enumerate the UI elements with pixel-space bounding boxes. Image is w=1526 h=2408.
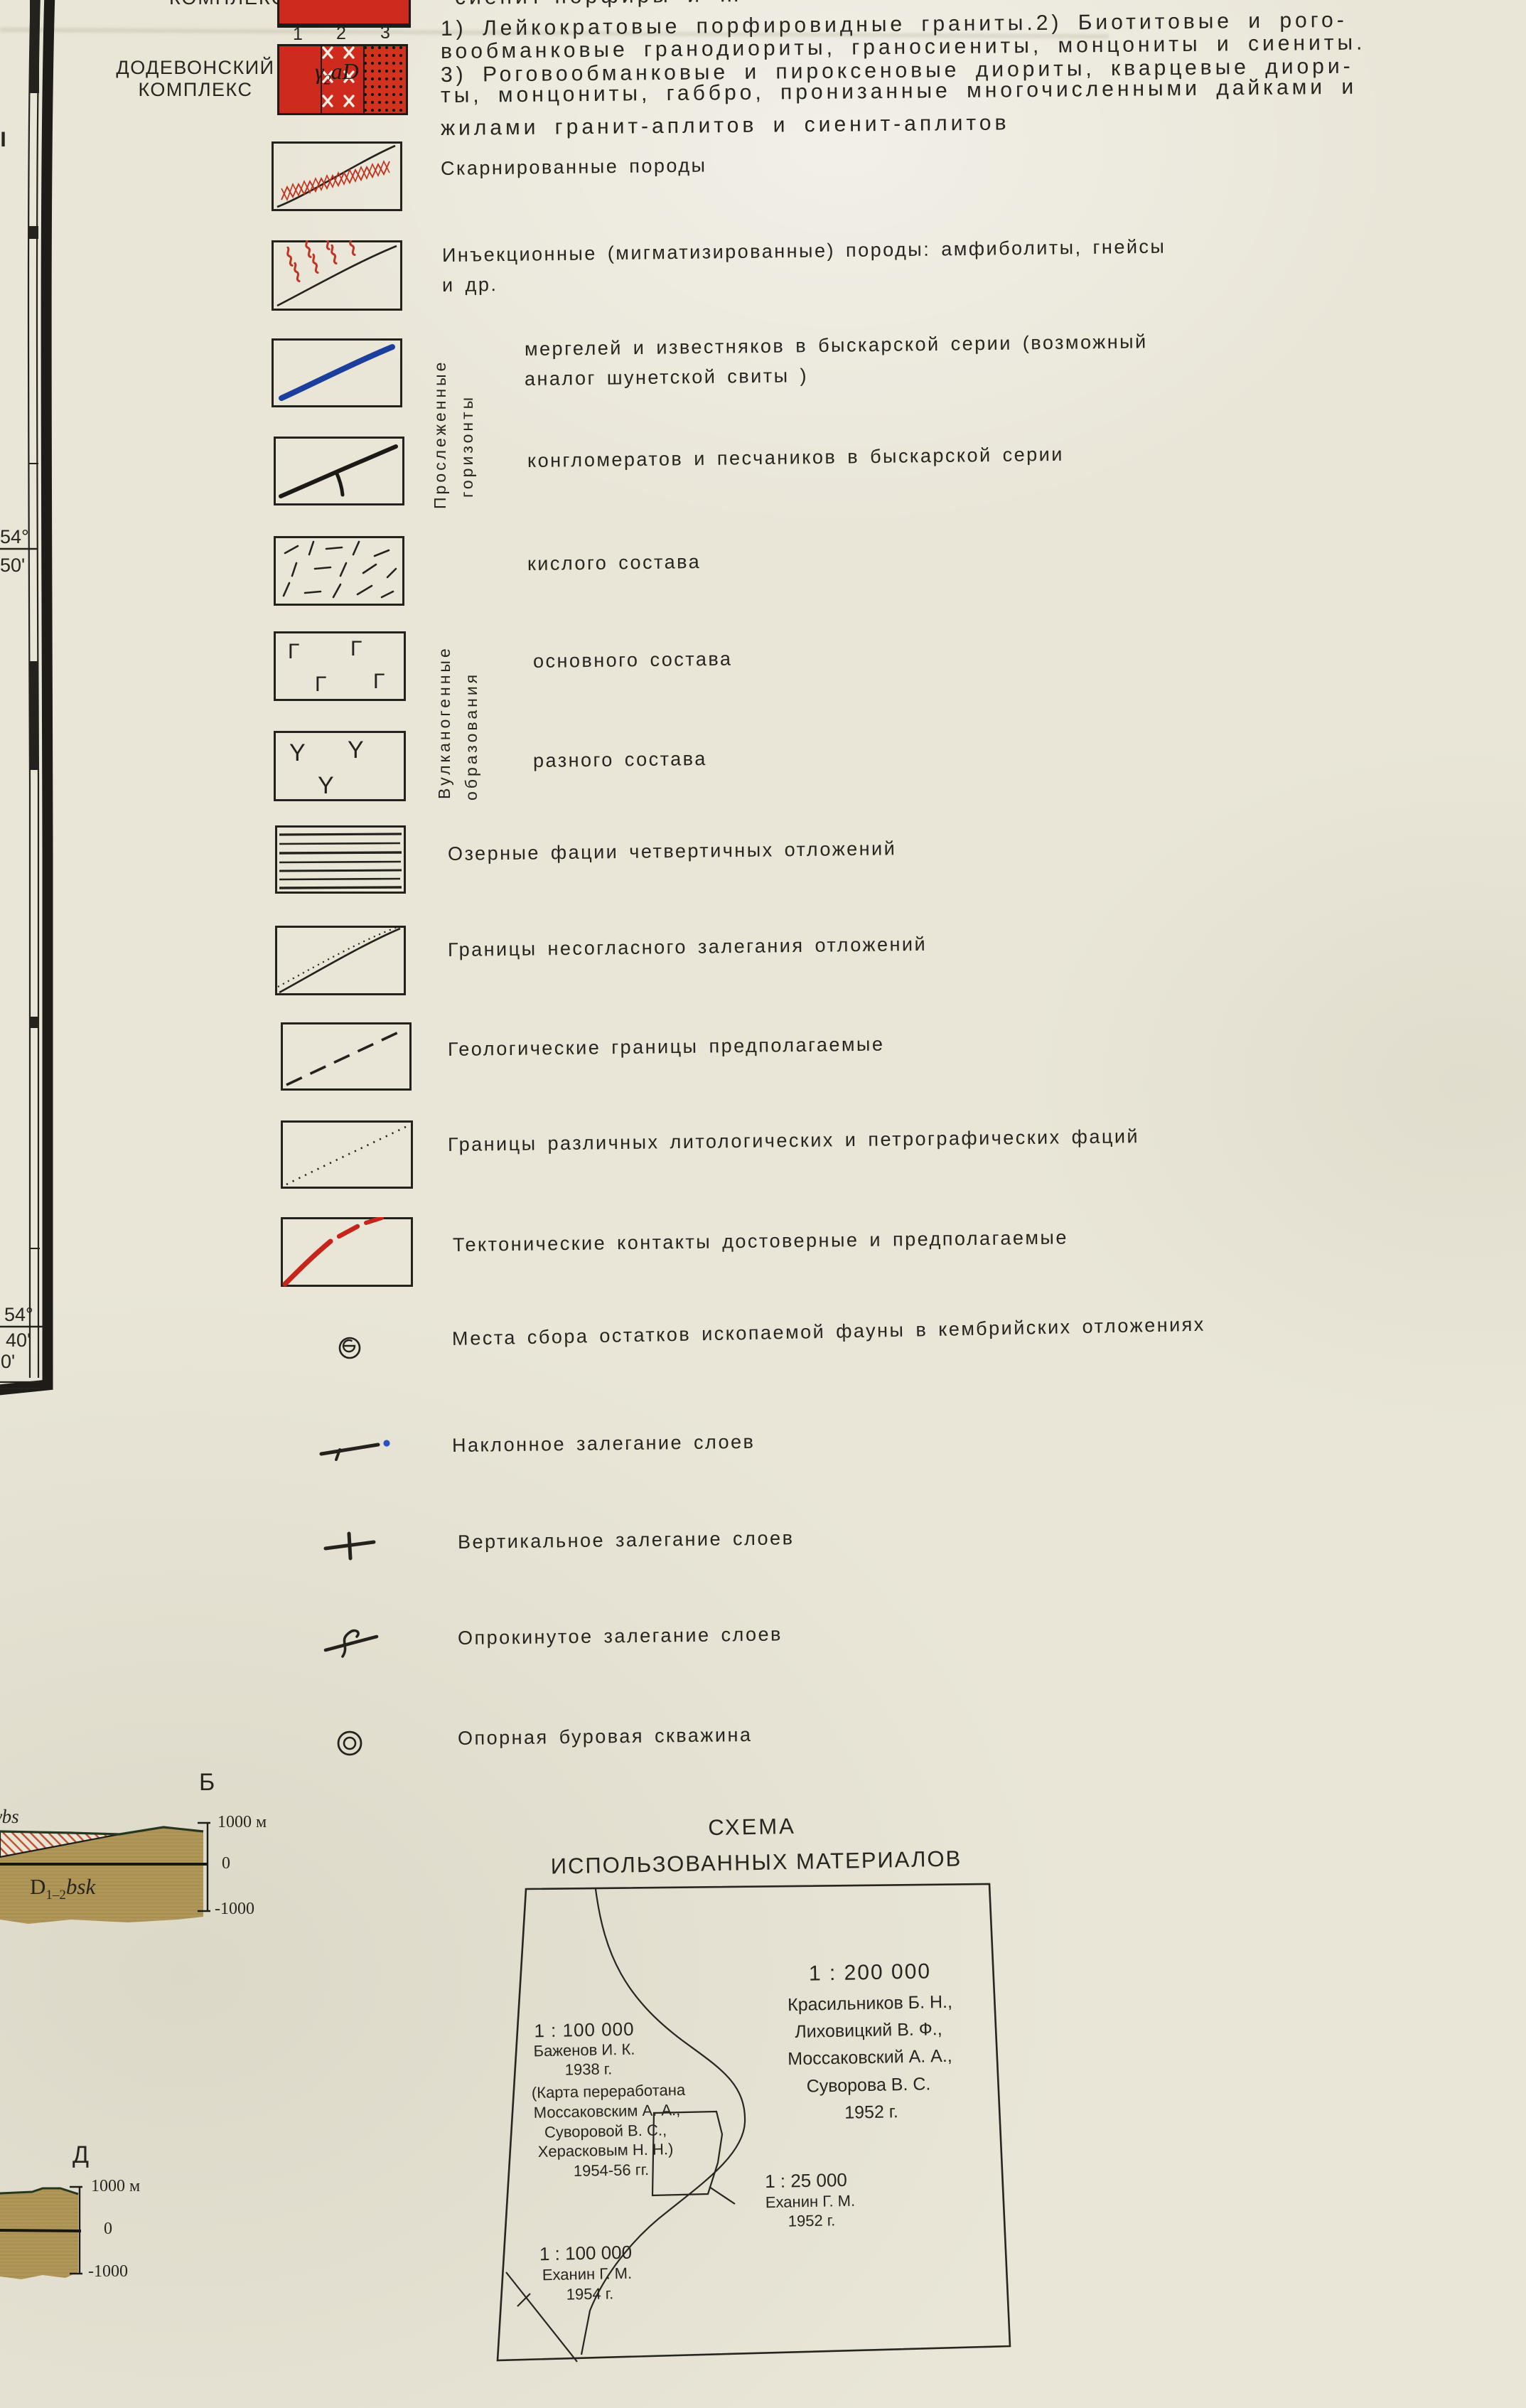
lake-horizontal-lines: [279, 834, 402, 888]
legend-label-injection-1: Инъекционные (мигматизированные) породы:…: [442, 236, 1166, 267]
tectonic-solid-segment: [285, 1241, 331, 1284]
swatch-col-number-1: 1: [293, 24, 303, 45]
schema-ekh100-line2: 1954 г.: [566, 2284, 613, 2303]
conglomerate-horizon-spur: [336, 472, 343, 495]
fossil-site-icon: [333, 1331, 367, 1365]
complex-name: ДОДЕВОНСКИЙ КОМПЛЕКС: [114, 57, 277, 101]
section-d-scale-0: 0: [104, 2220, 112, 2239]
legend-label-overturned: Опрокинутое залегание слоев: [458, 1623, 783, 1649]
symbol-unconformity-boundary: [275, 926, 406, 995]
symbol-conglomerate-horizon: [274, 437, 404, 505]
unit-d-sub: 1–2: [45, 1888, 66, 1903]
section-d-scale-1000: 1000 м: [91, 2177, 140, 2196]
schema-ekh25-scale: 1 : 25 000: [765, 2169, 847, 2193]
inclined-bedding-icon: [316, 1433, 398, 1466]
complex-desc-line5: жилами гранит-аплитов и сиенит-аплитов: [441, 111, 1010, 141]
section-b-scale-0: 0: [222, 1854, 230, 1873]
group-label-volcanic-1: Вулканогенные: [435, 613, 454, 799]
legend-label-marl-2: аналог шунетской свиты ): [525, 365, 808, 390]
complex-desc-cut: сиенит-порфиры и …: [455, 0, 744, 10]
group-label-traced-horizons-2: горизонты: [458, 351, 477, 498]
corner-lat-54: 54°: [4, 1304, 33, 1326]
unit-d-rest: bsk: [66, 1874, 95, 1899]
schema-bazh-line7: 1954-56 гг.: [574, 2161, 650, 2180]
symbol-skarn-rocks: [272, 141, 402, 211]
unit-code-gamma2ad: γ2aD: [315, 58, 359, 88]
svg-text:Г: Г: [288, 640, 299, 663]
injection-contact-line: [277, 246, 397, 306]
legend-label-injection-2: и др.: [442, 274, 498, 296]
legend-label-skarn: Скарнированные породы: [441, 154, 707, 180]
complex-name-line1: ДОДЕВОНСКИЙ: [114, 57, 277, 79]
schema-ekh25-line2: 1952 г.: [788, 2211, 835, 2230]
tectonic-dash-1: [339, 1226, 358, 1236]
injection-squiggles: [285, 240, 356, 282]
schema-bazh-line5: Суворовой В. С.,: [544, 2121, 667, 2141]
legend-label-borehole: Опорная буровая скважина: [458, 1724, 753, 1750]
swatch-col-number-3: 3: [380, 23, 390, 43]
swatch-col-number-2: 2: [336, 23, 346, 44]
symbol-mixed-volcanics: YY Y: [274, 731, 406, 801]
symbol-injection-rocks: [272, 240, 402, 311]
unit-code-rest: aD: [331, 58, 359, 84]
symbol-facies-boundary: [281, 1120, 413, 1189]
schema-title-line1: СХЕМА: [708, 1814, 796, 1841]
legend-label-conglomerate: конгломератов и песчаников в быскарской …: [527, 444, 1064, 472]
unconformity-dotted-line: [278, 927, 397, 987]
complex-header-fragment: КОМПЛЕКС: [169, 0, 286, 9]
svg-text:Г: Г: [350, 637, 362, 660]
corner-lat-40min: 40': [6, 1329, 31, 1352]
schema-bazh-line3: (Карта переработана: [532, 2081, 686, 2102]
legend-label-vertical: Вертикальное залегание слоев: [458, 1527, 795, 1553]
basic-gamma-glyphs: ГГ ГГ: [288, 637, 385, 696]
section-d-zero-line: [0, 2230, 81, 2231]
schema-index-map: [398, 1848, 1052, 2389]
legend-label-facies: Границы различных литологических и петро…: [448, 1125, 1139, 1156]
section-d-scale-minus1000: -1000: [88, 2262, 128, 2281]
mixed-y-glyphs: YY Y: [289, 737, 364, 799]
symbol-basic-volcanics: ГГ ГГ: [274, 631, 406, 701]
map-frame-border: [0, 0, 92, 1422]
sheet-index-roman: II: [0, 128, 8, 152]
schema-b200-line4: Суворова В. С.: [806, 2074, 930, 2097]
legend-label-acid: кислого состава: [527, 551, 702, 575]
legend-label-basic: основного состава: [533, 648, 733, 673]
geological-map-legend-sheet: II 54° 50' 54° 40' 00' КОМПЛЕКС 1 2 3 γ2…: [0, 0, 1526, 2408]
section-b-profile: [0, 1763, 242, 1941]
skarn-zigzag-2: [281, 161, 389, 200]
marl-horizon-line: [281, 347, 392, 398]
legend-label-inclined: Наклонное залегание слоев: [452, 1431, 756, 1457]
symbol-marl-horizon: [272, 338, 402, 407]
symbol-acid-volcanics: [274, 536, 404, 606]
complex-name-line2: КОМПЛЕКС: [114, 79, 277, 101]
legend-label-marl-1: мергелей и известняков в быскарской сери…: [525, 331, 1148, 360]
legend-label-tectonic: Тектонические контакты достоверные и пре…: [453, 1226, 1068, 1256]
group-label-traced-horizons-1: Прослеженные: [431, 328, 450, 509]
legend-label-fossil: Места сбора остатков ископаемой фауны в …: [452, 1314, 1205, 1350]
schema-bazh-line4: Моссаковским А. А.,: [533, 2101, 680, 2122]
section-b-scale-1000: 1000 м: [217, 1813, 267, 1832]
unit-code-gamma: γ: [315, 58, 324, 84]
facies-dotted-line: [286, 1126, 407, 1184]
conglomerate-horizon-line: [281, 446, 396, 496]
skarn-contact-line: [277, 146, 395, 207]
inferred-dashed-line: [286, 1029, 404, 1085]
schema-bazh-line2: 1938 г.: [564, 2060, 612, 2079]
schema-bazh-line1: Баженов И. К.: [533, 2040, 635, 2061]
svg-text:Y: Y: [348, 737, 364, 764]
symbol-lake-facies: [275, 825, 406, 894]
borehole-icon: [330, 1723, 370, 1763]
unit-d: D: [30, 1874, 45, 1899]
legend-label-inferred: Геологические границы предполагаемые: [448, 1033, 885, 1061]
overturned-bedding-icon: [320, 1624, 387, 1664]
svg-text:Г: Г: [373, 670, 385, 693]
unconformity-solid-line: [279, 929, 400, 992]
schema-b200-line3: Моссаковский А. А.,: [788, 2046, 952, 2070]
lat-label-50min: 50': [0, 555, 25, 577]
schema-ekh25-line1: Еханин Г. М.: [765, 2192, 856, 2212]
dip-value-dot: [383, 1440, 389, 1446]
acid-dash-pattern: [284, 542, 396, 597]
symbol-inferred-boundary: [281, 1022, 412, 1091]
svg-text:Y: Y: [318, 772, 334, 799]
unit-code-sub: 2: [324, 72, 331, 87]
svg-text:Y: Y: [289, 739, 306, 766]
svg-text:Г: Г: [315, 673, 326, 696]
schema-bazh-line6: Херасковым Н. Н.): [537, 2140, 673, 2161]
corner-lon-00min: 00': [0, 1351, 15, 1373]
schema-bazh-scale: 1 : 100 000: [534, 2018, 635, 2043]
section-d-band: [0, 2188, 78, 2279]
section-b-scale-minus1000: -1000: [215, 1900, 254, 1919]
legend-label-mixed: разного состава: [533, 748, 707, 772]
symbol-tectonic-contact: [281, 1217, 413, 1287]
vertical-bedding-icon: [321, 1527, 381, 1564]
schema-b200-line2: Лиховицкий В. Ф.,: [795, 2019, 942, 2043]
schema-b200-scale: 1 : 200 000: [809, 1959, 932, 1986]
dot-pattern-column: [364, 46, 407, 114]
schema-b200-line1: Красильников Б. Н.,: [788, 1992, 952, 2016]
section-b-unit-label: D1–2bsk: [30, 1874, 95, 1903]
schema-ekh100-line1: Еханин Г. М.: [542, 2264, 633, 2284]
schema-ekh100-scale: 1 : 100 000: [539, 2242, 633, 2265]
group-label-volcanic-2: образования: [462, 634, 481, 801]
schema-pointer-tick: [709, 2187, 735, 2204]
legend-label-lake: Озерные фации четвертичных отложений: [448, 838, 897, 865]
lat-label-54: 54°: [0, 526, 29, 548]
outer-thick-border: [0, 0, 50, 1391]
schema-b200-line5: 1952 г.: [844, 2102, 898, 2123]
section-d-profile: [0, 2161, 171, 2296]
legend-label-unconformity: Границы несогласного залегания отложений: [448, 933, 927, 961]
